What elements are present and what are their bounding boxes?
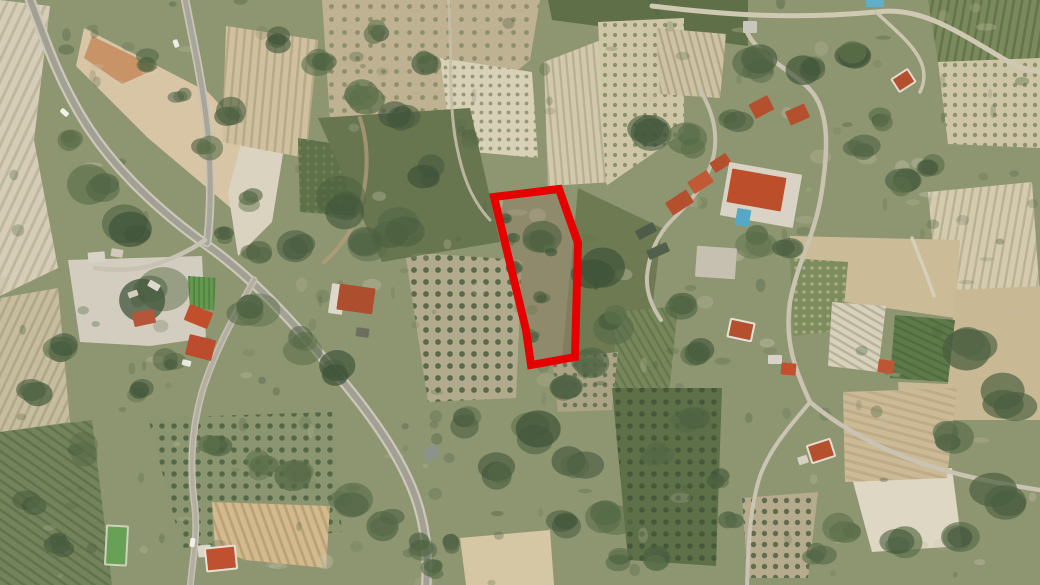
tree-cluster — [546, 510, 577, 532]
tree-cluster — [969, 473, 1017, 507]
tree-cluster — [445, 544, 459, 554]
tree-cluster — [133, 276, 167, 303]
tree-cluster — [829, 521, 861, 543]
tree-cluster — [129, 382, 149, 399]
building-mid-right-house — [727, 319, 754, 342]
tree-cluster — [723, 111, 753, 132]
tree-cluster — [70, 432, 98, 458]
field-right-pale-orchard-pattern — [938, 58, 1040, 148]
tree-cluster — [653, 447, 675, 464]
tree-cluster — [917, 160, 938, 177]
tree-cluster — [585, 501, 621, 533]
tree-cluster — [238, 197, 260, 212]
tree-cluster — [214, 226, 234, 240]
tree-cluster — [417, 55, 442, 74]
building-small-white-shed — [768, 355, 782, 364]
tree-cluster — [741, 44, 777, 73]
tree-cluster — [50, 333, 78, 356]
tree-cluster — [933, 421, 959, 444]
field-topright-green-rows-pattern — [928, 0, 1040, 62]
tree-cluster — [421, 559, 440, 576]
tree-cluster — [138, 57, 154, 72]
tree-cluster — [290, 234, 315, 254]
tree-cluster — [516, 410, 561, 447]
tree-cluster — [957, 330, 998, 361]
tree-cluster — [19, 383, 43, 399]
tree-cluster — [606, 554, 631, 571]
tree-cluster — [533, 291, 546, 303]
tree-cluster — [838, 41, 866, 63]
tree-cluster — [879, 529, 914, 554]
tree-cluster — [665, 296, 697, 320]
tree-cluster — [316, 176, 366, 219]
tree-cluster — [631, 115, 672, 151]
aerial-imagery — [0, 0, 1040, 585]
building-mid-house — [336, 284, 375, 315]
tree-cluster — [254, 247, 272, 262]
building-gray-slab — [695, 246, 737, 280]
building-greenhouse — [105, 525, 128, 565]
tree-cluster — [561, 453, 589, 478]
tree-cluster — [890, 177, 911, 197]
building-mid-house-shed — [355, 327, 369, 338]
tree-cluster — [322, 364, 349, 386]
building-bottomcenter-house — [205, 545, 237, 571]
tree-cluster — [109, 212, 152, 247]
tree-cluster — [334, 492, 368, 517]
tree-cluster — [646, 555, 666, 568]
building-top-gray-building — [743, 21, 757, 33]
tree-cluster — [407, 165, 439, 189]
tree-cluster — [604, 305, 627, 325]
field-pale-rows-mid-pattern — [828, 302, 886, 372]
building-small-red-shed — [781, 362, 797, 375]
tree-cluster — [679, 407, 710, 429]
tree-cluster — [685, 342, 711, 365]
tree-cluster — [198, 435, 220, 454]
tree-cluster — [249, 465, 270, 481]
tree-cluster — [267, 26, 290, 44]
tree-cluster — [799, 58, 825, 81]
tree-cluster — [873, 114, 893, 132]
tree-cluster — [366, 511, 398, 541]
tree-cluster — [718, 511, 737, 528]
tree-cluster — [461, 134, 479, 146]
tree-cluster — [43, 535, 70, 553]
tree-cluster — [312, 53, 337, 71]
tree-cluster — [348, 86, 385, 115]
tree-cluster — [947, 527, 972, 548]
satellite-map-view[interactable] — [0, 0, 1040, 585]
tree-cluster — [90, 173, 119, 194]
tree-cluster — [236, 294, 280, 327]
tree-cluster — [282, 460, 314, 483]
tree-cluster — [545, 248, 557, 256]
building-red-hut-right — [877, 359, 895, 374]
tree-cluster — [843, 140, 866, 156]
tree-cluster — [745, 233, 777, 257]
tree-cluster — [27, 497, 47, 513]
tree-cluster — [981, 373, 1025, 410]
field-vineyard-ne-pattern — [656, 28, 726, 98]
tree-cluster — [809, 546, 837, 565]
tree-cluster — [408, 539, 437, 560]
tree-cluster — [385, 217, 425, 247]
tree-cluster — [488, 463, 512, 484]
tree-cluster — [283, 336, 322, 365]
tree-cluster — [58, 130, 81, 151]
tree-cluster — [549, 375, 581, 399]
building-swimming-pool — [735, 208, 752, 227]
tree-cluster — [772, 239, 795, 256]
tree-cluster — [455, 406, 481, 427]
tree-cluster — [677, 124, 700, 145]
tree-cluster — [508, 233, 520, 243]
building-compound-clutter-a — [88, 251, 106, 262]
tree-cluster — [168, 92, 185, 103]
tree-cluster — [367, 20, 385, 35]
tree-cluster — [196, 136, 223, 161]
tree-cluster — [214, 107, 240, 126]
building-topright-pool — [866, 0, 884, 7]
tree-cluster — [707, 474, 725, 489]
